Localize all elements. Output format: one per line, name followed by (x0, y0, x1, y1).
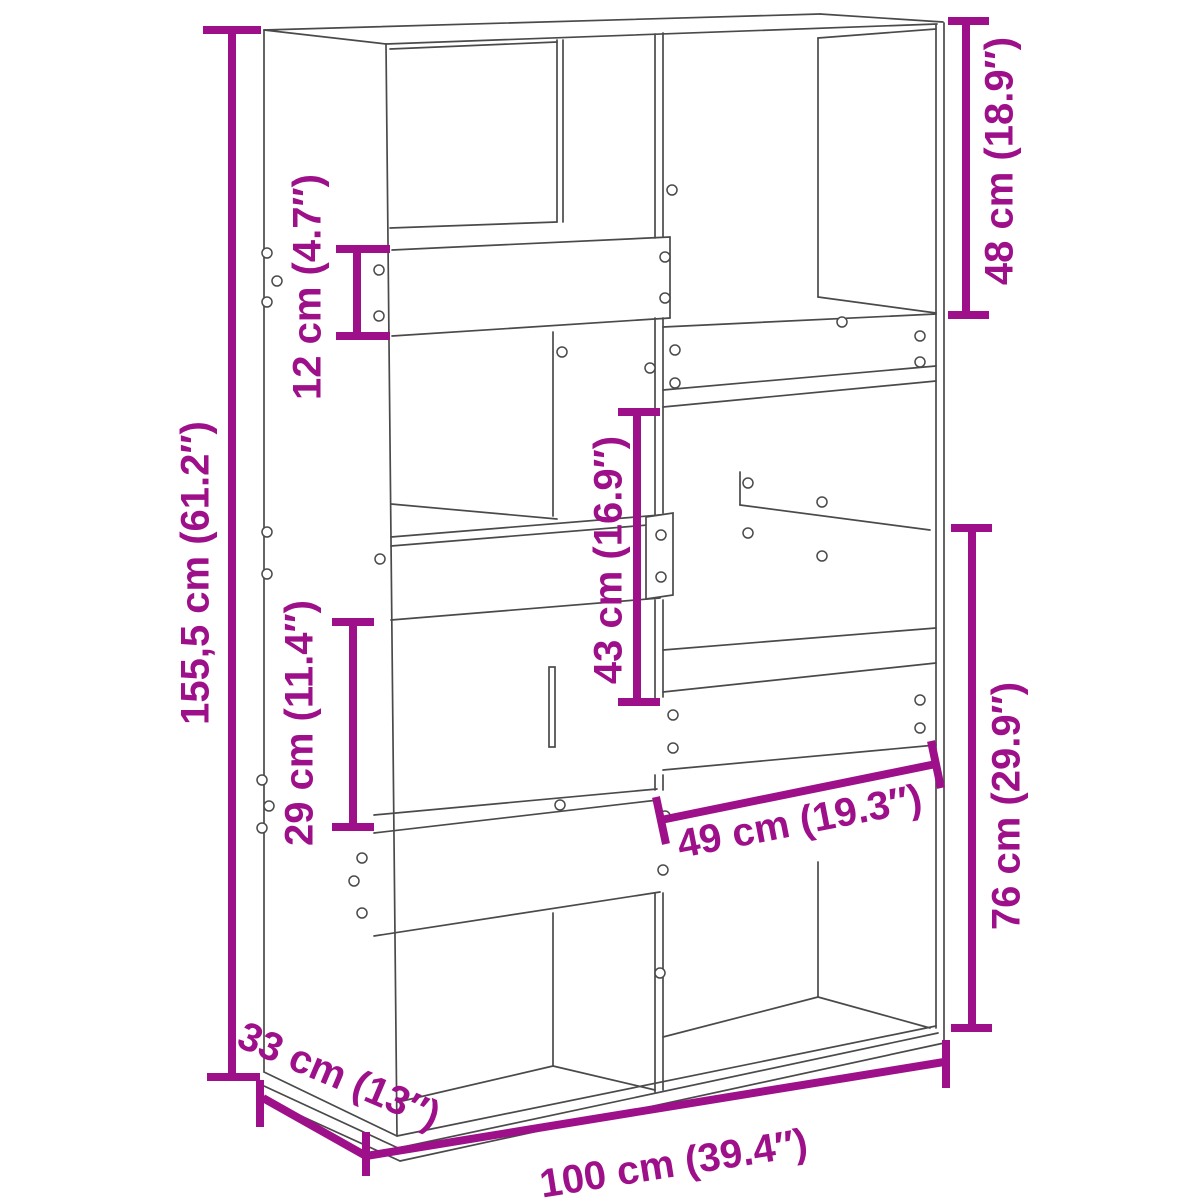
dimension-total-width: 100 cm (39.4″) (366, 1040, 946, 1200)
dimension-diagram: 155,5 cm (61.2″) 12 cm (4.7″) 48 cm (18.… (0, 0, 1200, 1200)
upper-right-board (663, 297, 936, 407)
middle-right-shelf (663, 628, 936, 770)
dim-label-lower-right-section: 76 cm (29.9″) (985, 682, 1029, 930)
dimension-total-height: 155,5 cm (61.2″) (174, 30, 261, 1077)
diagram-canvas: 155,5 cm (61.2″) 12 cm (4.7″) 48 cm (18.… (0, 0, 1200, 1200)
middle-left-shelf (391, 504, 673, 620)
dimension-top-right-compartment: 48 cm (18.9″) (948, 21, 1022, 315)
dim-label-middle-compartment: 43 cm (16.9″) (587, 436, 631, 684)
dimension-lower-left-compartment: 29 cm (11.4″) (278, 600, 374, 846)
dimension-compartment-width: 49 cm (19.3″) (656, 741, 941, 867)
dim-label-total-height: 155,5 cm (61.2″) (174, 421, 218, 725)
upper-left-board (390, 222, 670, 336)
dim-label-total-width: 100 cm (39.4″) (537, 1121, 811, 1200)
dim-label-top-right-compartment: 48 cm (18.9″) (978, 37, 1022, 285)
dim-label-riser-board-height: 12 cm (4.7″) (286, 174, 330, 400)
dimension-annotations: 155,5 cm (61.2″) 12 cm (4.7″) 48 cm (18.… (174, 21, 1029, 1200)
dimension-riser-board-height: 12 cm (4.7″) (286, 174, 390, 400)
lower-left-board (374, 789, 660, 936)
dim-label-lower-left-compartment: 29 cm (11.4″) (278, 600, 322, 846)
dimension-lower-right-section: 76 cm (29.9″) (951, 528, 1029, 1028)
